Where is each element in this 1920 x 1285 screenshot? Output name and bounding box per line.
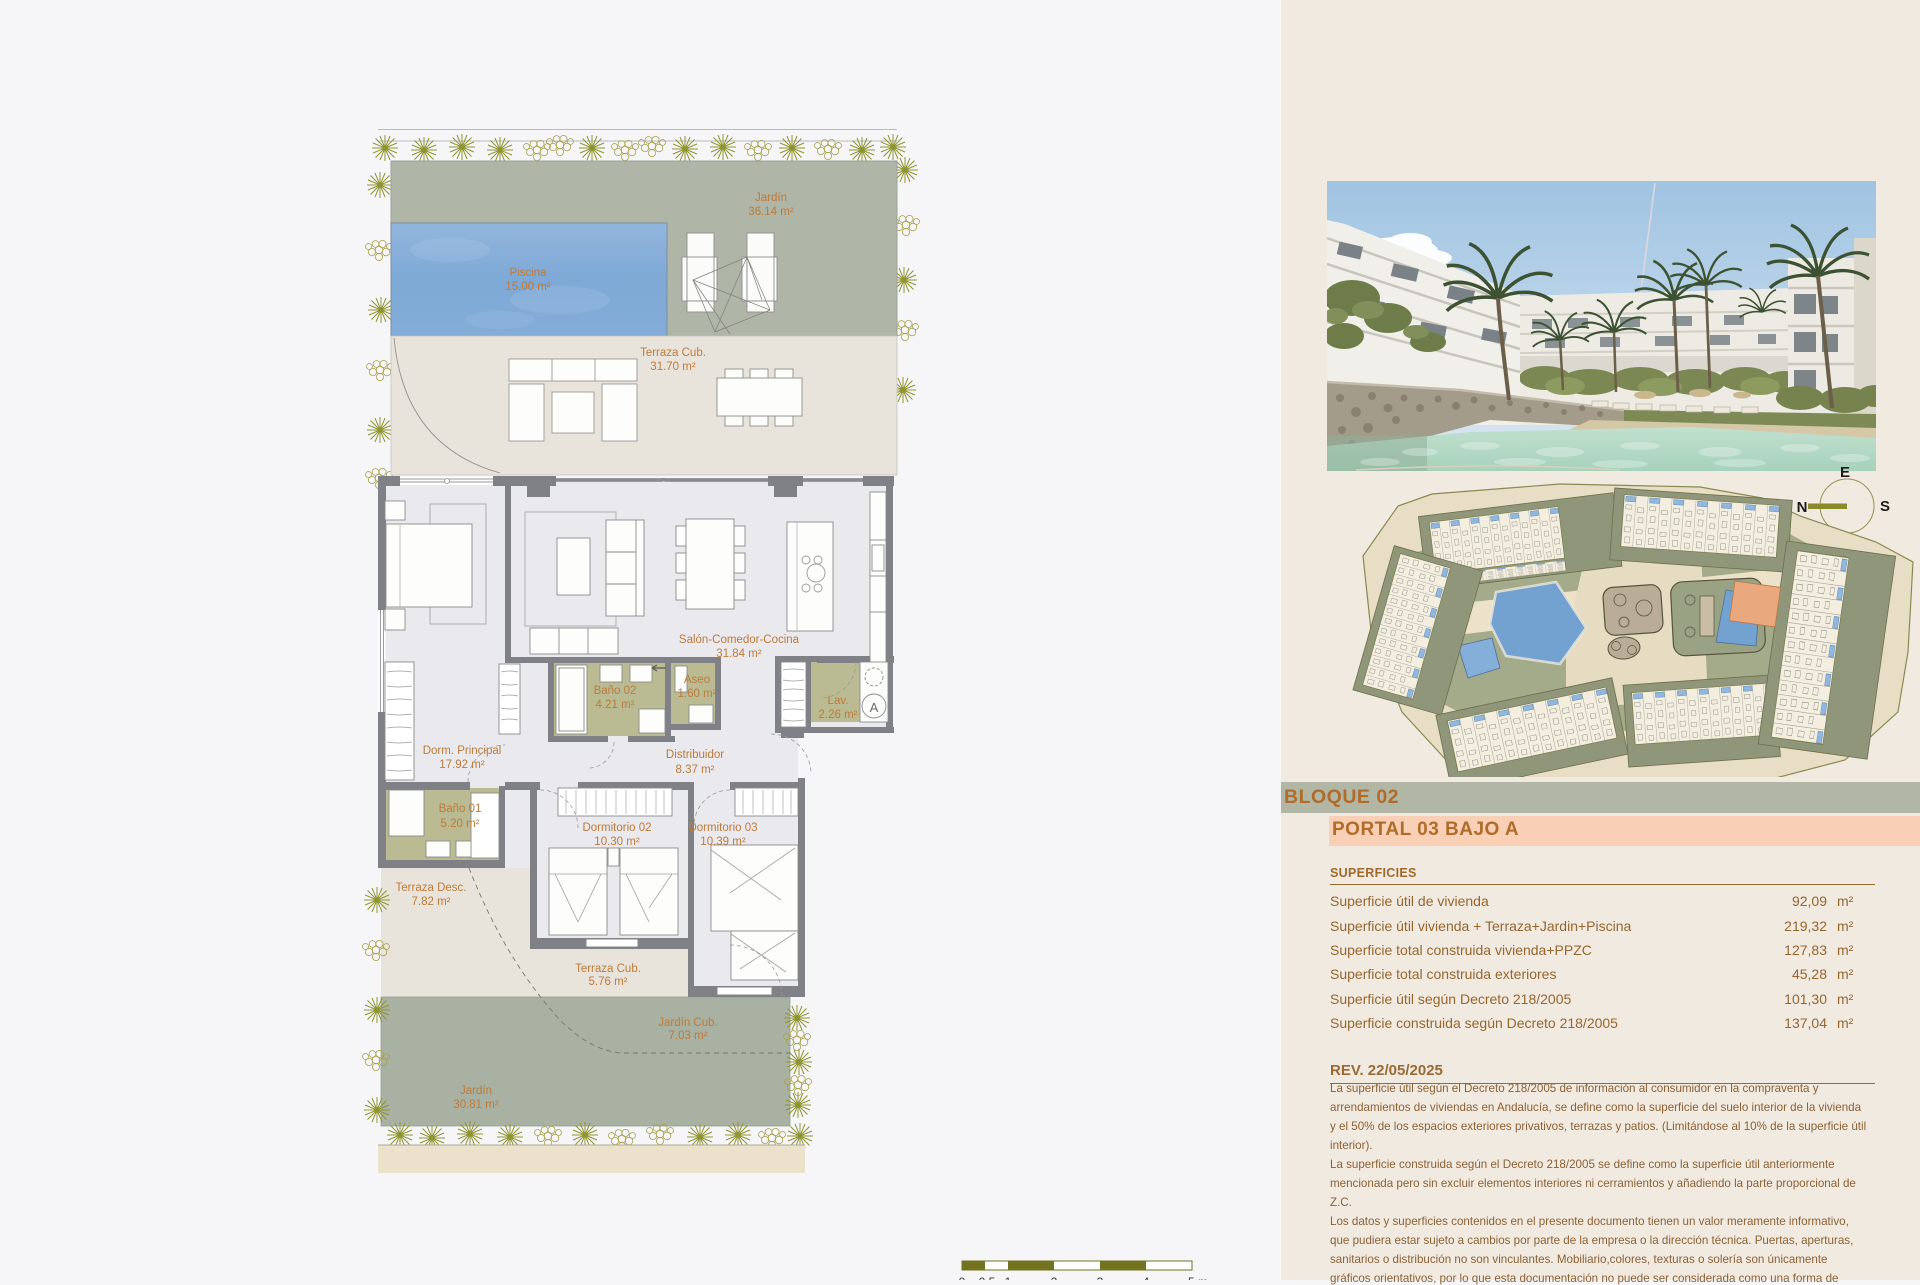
svg-text:Lav.: Lav. bbox=[828, 695, 849, 707]
svg-text:Distribuidor: Distribuidor bbox=[666, 749, 724, 761]
svg-text:Jardín: Jardín bbox=[755, 192, 787, 204]
svg-text:4.21 m²: 4.21 m² bbox=[596, 699, 635, 711]
svg-text:2.26 m²: 2.26 m² bbox=[819, 709, 858, 721]
svg-text:Salón-Comedor-Cocina: Salón-Comedor-Cocina bbox=[679, 634, 800, 646]
svg-text:Baño 02: Baño 02 bbox=[594, 685, 637, 697]
svg-text:Dormitorio 03: Dormitorio 03 bbox=[688, 822, 757, 834]
svg-text:3: 3 bbox=[1097, 1275, 1104, 1280]
svg-text:Dorm. Principal: Dorm. Principal bbox=[423, 745, 502, 757]
svg-text:Aseo: Aseo bbox=[684, 674, 710, 686]
svg-text:1: 1 bbox=[1005, 1275, 1012, 1280]
svg-text:15.00 m²: 15.00 m² bbox=[505, 281, 551, 293]
svg-text:10.39 m²: 10.39 m² bbox=[700, 836, 746, 848]
svg-text:Baño 01: Baño 01 bbox=[439, 803, 482, 815]
svg-text:30.81 m²: 30.81 m² bbox=[453, 1099, 499, 1111]
svg-text:31.84 m²: 31.84 m² bbox=[716, 648, 762, 660]
svg-text:0.5: 0.5 bbox=[979, 1275, 996, 1280]
svg-text:N: N bbox=[1797, 499, 1808, 516]
svg-text:2: 2 bbox=[1051, 1275, 1058, 1280]
svg-text:7.82 m²: 7.82 m² bbox=[412, 896, 451, 908]
svg-text:17.92 m²: 17.92 m² bbox=[439, 759, 485, 771]
svg-text:Jardín Cub.: Jardín Cub. bbox=[658, 1017, 717, 1029]
svg-text:7.03 m²: 7.03 m² bbox=[669, 1030, 708, 1042]
svg-text:8.37 m²: 8.37 m² bbox=[676, 764, 715, 776]
svg-text:31.70 m²: 31.70 m² bbox=[650, 361, 696, 373]
svg-text:Jardín: Jardín bbox=[460, 1085, 492, 1097]
svg-text:Terraza Desc.: Terraza Desc. bbox=[396, 882, 467, 894]
svg-text:1.60 m²: 1.60 m² bbox=[678, 688, 717, 700]
svg-text:A: A bbox=[870, 700, 879, 715]
svg-text:E: E bbox=[1840, 464, 1850, 481]
svg-text:0: 0 bbox=[959, 1275, 966, 1280]
svg-text:Terraza Cub.: Terraza Cub. bbox=[575, 963, 641, 975]
svg-text:Terraza Cub.: Terraza Cub. bbox=[640, 347, 706, 359]
svg-text:5.76 m²: 5.76 m² bbox=[589, 976, 628, 988]
svg-text:S: S bbox=[1880, 498, 1890, 515]
svg-text:5.20 m²: 5.20 m² bbox=[441, 818, 480, 830]
svg-text:10.30 m²: 10.30 m² bbox=[594, 836, 640, 848]
svg-text:4: 4 bbox=[1143, 1275, 1150, 1280]
svg-text:5 m: 5 m bbox=[1188, 1275, 1208, 1280]
svg-text:Piscina: Piscina bbox=[509, 267, 547, 279]
svg-text:Dormitorio 02: Dormitorio 02 bbox=[582, 822, 651, 834]
svg-text:36.14 m²: 36.14 m² bbox=[748, 206, 794, 218]
